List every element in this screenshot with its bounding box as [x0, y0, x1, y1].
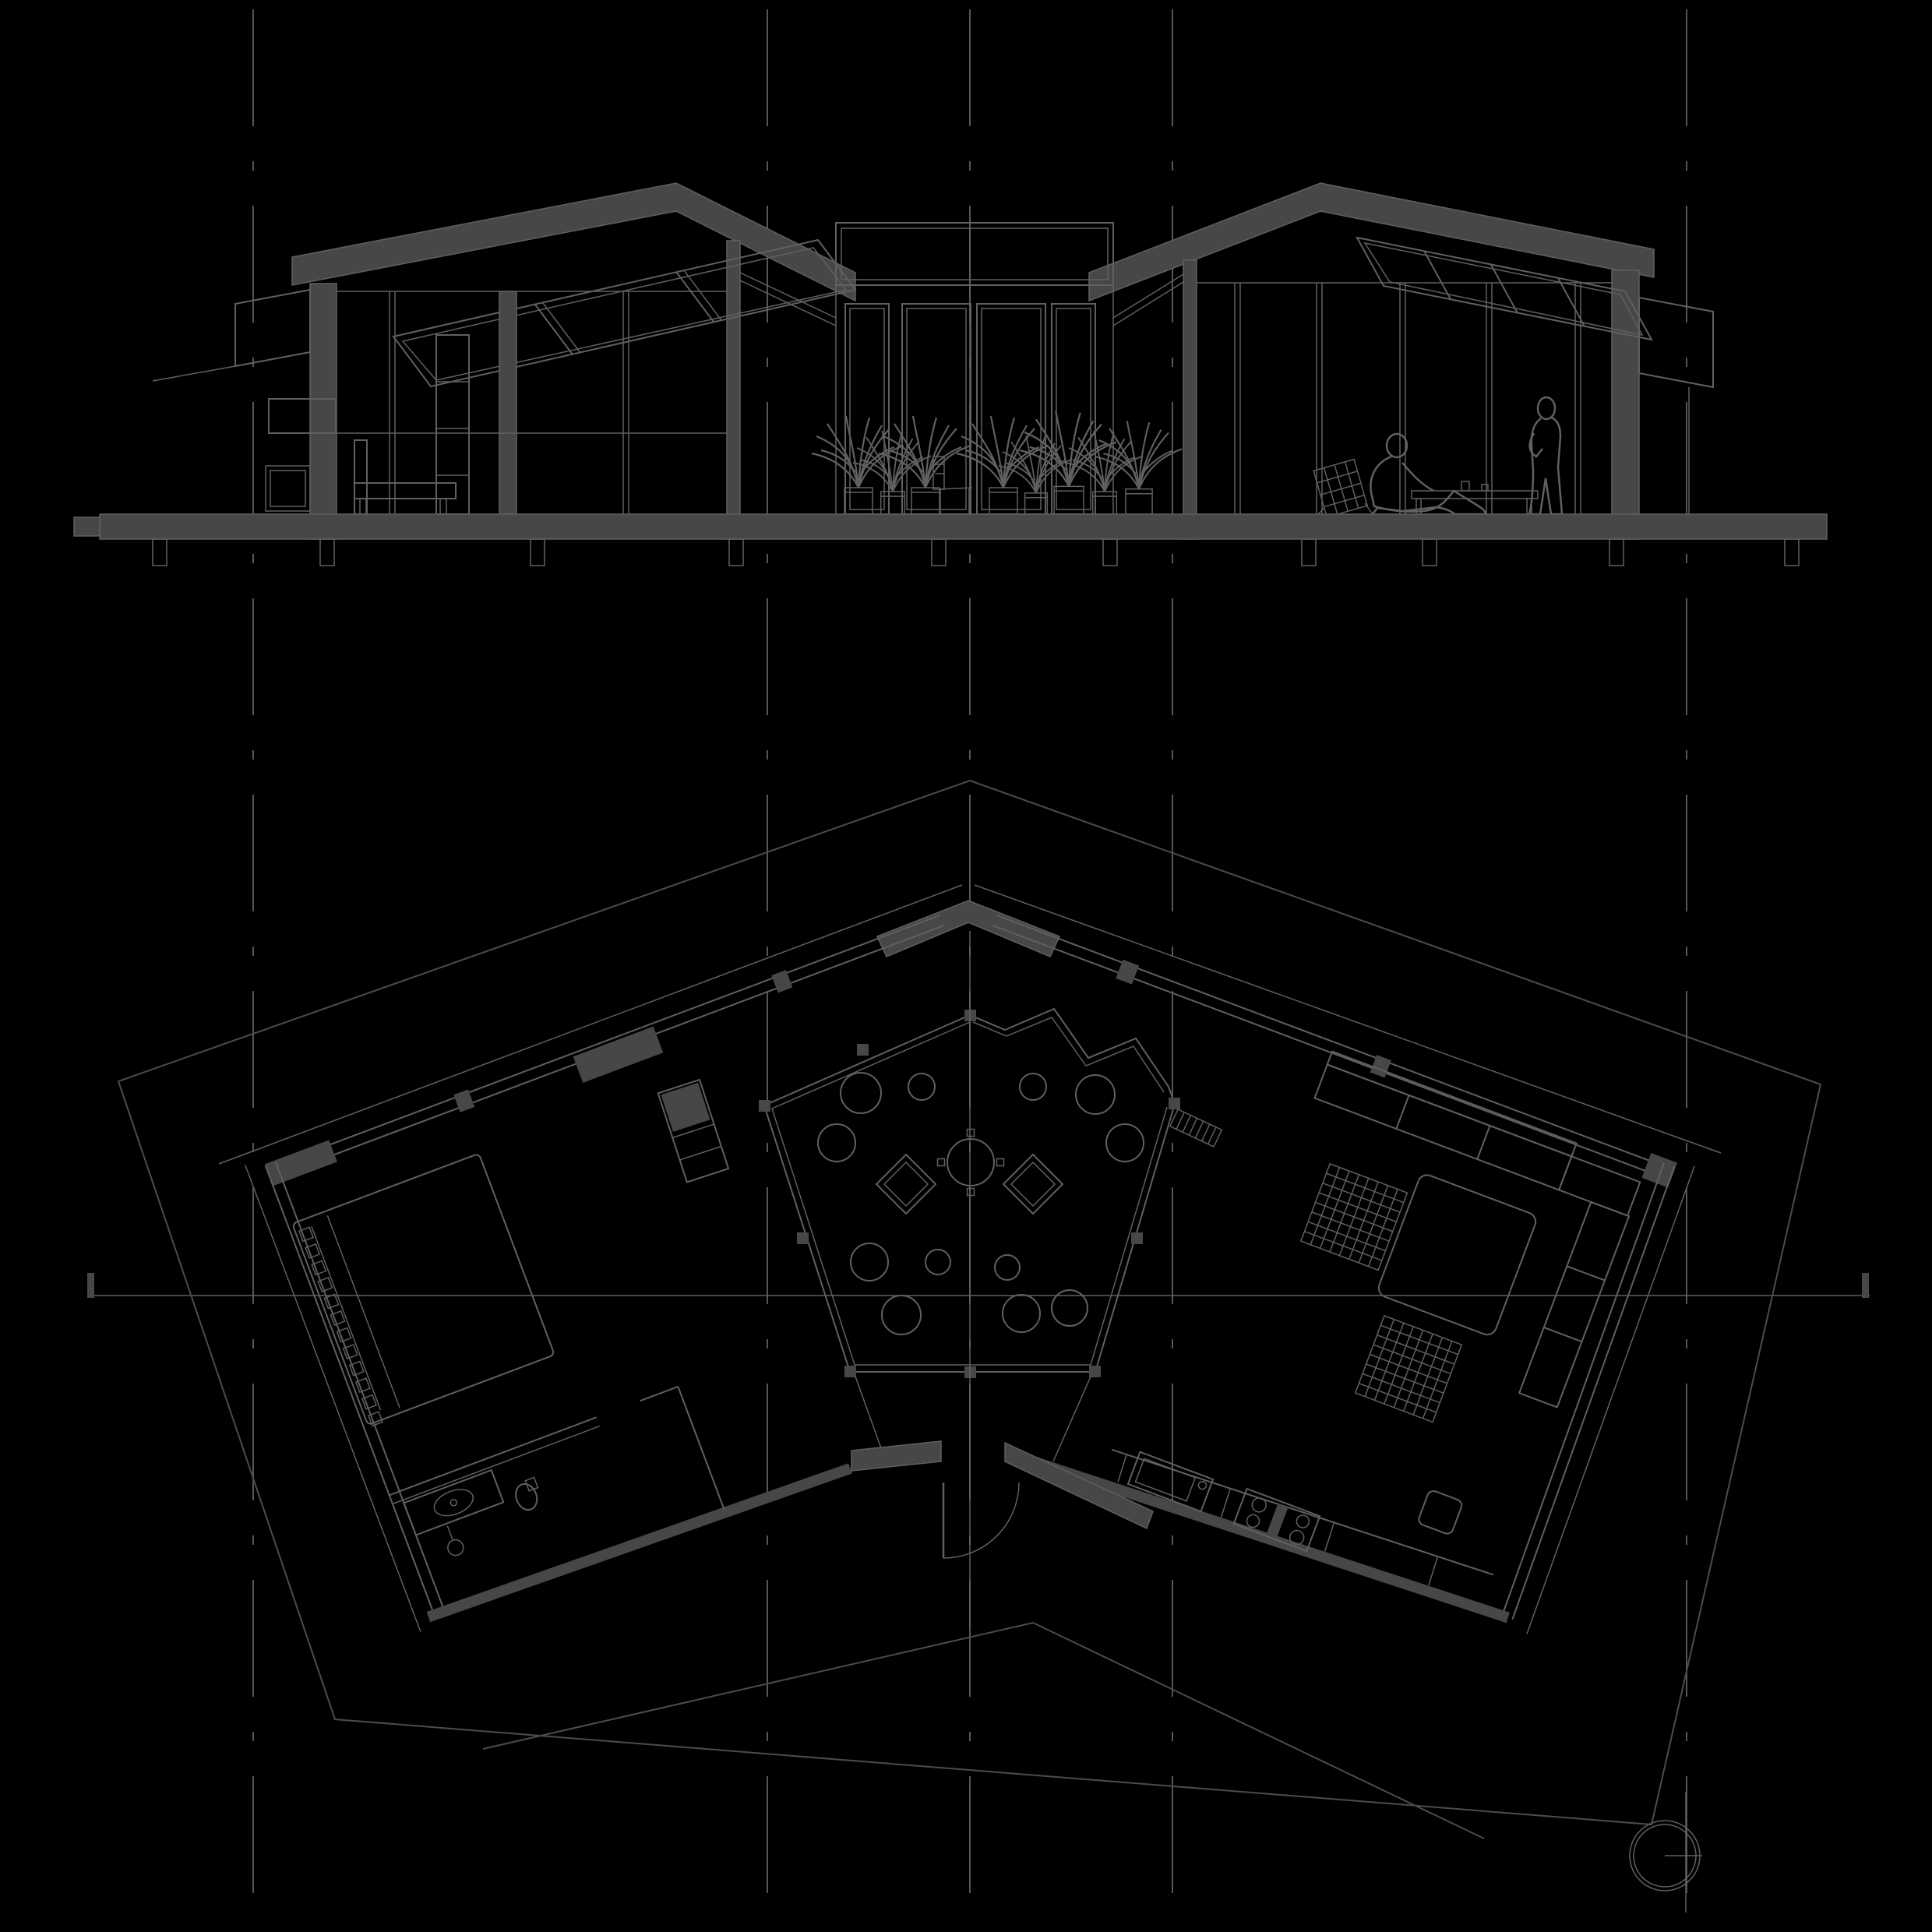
standing-person: [1529, 397, 1562, 514]
corner-pier: [1641, 1153, 1677, 1187]
planter-circle: [925, 1250, 950, 1274]
plant-pot: [844, 488, 873, 514]
terrace-edge: [483, 1623, 1484, 1839]
shower-drain: [446, 1538, 466, 1558]
section-elevation: [74, 183, 1827, 566]
planter-circle: [1076, 1075, 1115, 1114]
blueprint-canvas: [0, 0, 1932, 1932]
north-arrow-icon: [1630, 1792, 1702, 1913]
planter-circle: [995, 1255, 1020, 1280]
pier: [1785, 539, 1799, 566]
bathroom: [390, 1387, 724, 1618]
planter-circle: [1020, 1074, 1046, 1100]
center-table: [938, 1130, 1004, 1196]
wardrobe: [573, 1027, 664, 1083]
foundation-piers: [153, 539, 1799, 566]
right-inner-column: [1183, 260, 1197, 539]
planter-circle: [841, 1073, 881, 1113]
headboard-shelf: [299, 1227, 383, 1426]
right-eave-outline: [1639, 298, 1713, 387]
courtyard-pier: [797, 1232, 809, 1244]
pier: [531, 539, 545, 566]
cube-stool: [1417, 1490, 1463, 1535]
seated-person: [1370, 434, 1485, 514]
door-jamb-wall-left: [851, 1441, 941, 1471]
floor-slab: [100, 514, 1827, 539]
entry-door[interactable]: [943, 1482, 1019, 1558]
table-tab: [997, 1159, 1004, 1166]
planter-circle: [851, 1243, 888, 1281]
courtyard-pier: [857, 1044, 869, 1056]
courtyard: [759, 931, 1180, 1628]
pier: [1423, 539, 1437, 566]
plant-pot: [989, 488, 1017, 514]
courtyard-pier: [759, 1100, 770, 1112]
floor-plan: [118, 781, 1821, 1913]
courtyard-pier: [844, 1366, 856, 1377]
plant-pot: [911, 488, 940, 514]
wall-pier: [1116, 960, 1139, 985]
planter-circle: [882, 1296, 921, 1334]
entry: [851, 1377, 1153, 1558]
planter-circle: [1003, 1295, 1040, 1332]
pier: [1103, 539, 1117, 566]
living-wing: [821, 905, 1702, 1647]
grid-mats: [1257, 1164, 1505, 1423]
floor-slab-left-step: [74, 517, 100, 536]
toilet: [513, 1481, 541, 1513]
plant-pot: [1126, 489, 1152, 514]
pier: [1609, 539, 1624, 566]
vanity: [404, 1470, 503, 1535]
plant-pot: [1025, 493, 1048, 514]
square-table: [1376, 1172, 1538, 1338]
courtyard-pier: [1131, 1232, 1143, 1244]
table-tab: [938, 1159, 945, 1166]
table-tab: [968, 1130, 975, 1137]
bedroom-closet: [658, 1080, 728, 1182]
faucet: [1197, 1480, 1207, 1490]
planter-circle: [1106, 1124, 1144, 1162]
courtyard-pier: [1089, 1366, 1101, 1377]
planter-circle: [908, 1074, 935, 1100]
left-roof-beam: [292, 183, 855, 301]
diamond-box: [876, 1155, 936, 1214]
courtyard-pier: [1169, 1098, 1180, 1109]
left-wall-cut: [310, 284, 337, 539]
living-glazing: [1235, 283, 1581, 514]
pier: [320, 539, 334, 566]
architectural-drawing: [0, 0, 1932, 1932]
courtyard-glazing: [845, 304, 1095, 514]
pier: [1302, 539, 1316, 566]
eave-line: [219, 885, 962, 1164]
bed: [292, 1154, 555, 1425]
planter-circle: [818, 1124, 855, 1162]
plant-icon: [879, 416, 971, 488]
pier: [729, 539, 743, 566]
bench: [354, 440, 456, 514]
low-window: [266, 466, 310, 511]
potted-plants: [812, 411, 1182, 514]
left-eave-outline: [235, 290, 310, 366]
bookshelf: [436, 335, 469, 514]
entry-ramp: [1170, 1109, 1222, 1147]
pier: [153, 539, 167, 566]
pier: [932, 539, 946, 566]
bedroom-wing: [245, 905, 1112, 1632]
left-inner-column: [727, 241, 740, 539]
diamond-box: [1003, 1155, 1063, 1214]
